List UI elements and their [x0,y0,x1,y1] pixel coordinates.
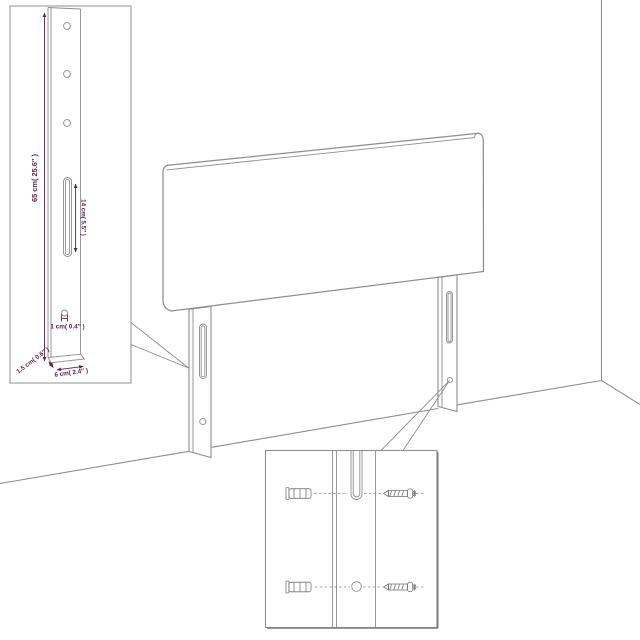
headboard-panel-outline [163,133,484,311]
right-leg-slot [447,292,453,344]
left-leg-callout-lines [131,323,189,369]
callout-line [131,323,189,369]
floor-line-behind-corner [457,381,602,405]
inset-slot [351,451,362,500]
leg-detail-inset: 65 cm( 25.6″ ) 14 cm( 5.5″ ) 1 cm( 0.4″ … [10,6,131,383]
callout-line [131,345,189,369]
left-leg-hole [200,418,206,424]
left-leg-slot [200,324,207,379]
inset-hole [352,582,362,592]
height-dimension-label: 65 cm( 25.6″ ) [30,154,39,202]
headboard-panel [163,133,484,311]
post-slot [64,178,72,257]
hardware-callout-lines [381,381,450,451]
callout-line [381,381,450,451]
floor-line-left [0,451,189,483]
floor-line-middle [211,409,438,448]
post-hole-lower [64,120,71,127]
hardware-detail-inset [266,451,439,629]
post-small-hole [62,310,68,316]
slot-dimension-label: 14 cm( 5.5″ ) [80,199,87,236]
left-leg [189,307,211,458]
product-diagram: 65 cm( 25.6″ ) 14 cm( 5.5″ ) 1 cm( 0.4″ … [0,0,640,640]
hole-dimension-label: 1 cm( 0.4″ ) [50,324,84,331]
post-hole-top [64,23,71,30]
diagram-canvas: 65 cm( 25.6″ ) 14 cm( 5.5″ ) 1 cm( 0.4″ … [0,0,640,640]
post-hole-middle [64,71,71,78]
floor-line-right [602,381,640,405]
right-leg [438,275,457,412]
callout-line [403,381,450,451]
